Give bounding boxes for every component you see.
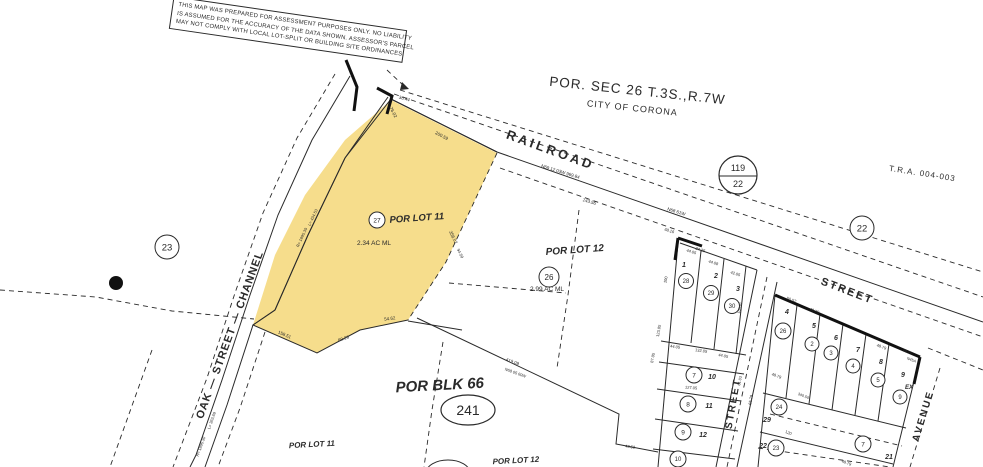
- label-42-05: 42.05: [730, 270, 742, 278]
- block-number: 241: [456, 402, 480, 418]
- label-por-sec-26-t-3s-r-7w: POR. SEC 26 T.3S.,R.7W: [549, 74, 727, 107]
- label-44-05: 44.05: [718, 352, 730, 359]
- label-2-34-ac-ml: 2.34 AC ML: [357, 240, 391, 247]
- label-por-lot-12: POR LOT 12: [545, 243, 604, 258]
- label-8: 8: [879, 359, 883, 366]
- dashed-boundary-line: [424, 342, 443, 467]
- boundary-line: [691, 251, 701, 343]
- dashed-boundary-line: [0, 290, 254, 319]
- heavy-boundary-line: [775, 295, 920, 357]
- label-t-r-a-004-003: T.R.A. 004-003: [888, 164, 956, 183]
- parcel-badge-number: 26: [780, 329, 787, 335]
- label-36-44: 36.44: [398, 95, 411, 103]
- dashed-boundary-line: [400, 90, 983, 272]
- parcel-badge-number: 26: [545, 273, 554, 282]
- label-419-09: 419.09: [505, 357, 520, 367]
- heavy-boundary-line: [346, 60, 357, 111]
- boundary-line: [408, 321, 462, 330]
- parcel-badge-number: 23: [773, 446, 780, 452]
- parcel-badge-number: 24: [776, 405, 783, 411]
- label-68-16: 68.16: [664, 227, 676, 235]
- parcel-badge-number: 27: [373, 217, 381, 224]
- label-por-lot-11: POR LOT 11: [289, 439, 336, 450]
- label-21: 21: [884, 454, 893, 461]
- label-143-56: 143.56: [582, 197, 597, 206]
- boundary-line: [680, 243, 757, 270]
- label-103-41: 103.41: [737, 302, 743, 314]
- page-reference-number: 119: [731, 163, 745, 173]
- label-n45a: N45A: [906, 356, 917, 363]
- label-48-70: 48.70: [902, 348, 912, 355]
- label-street: STREET: [819, 276, 875, 307]
- parcel-badge-number: 23: [162, 242, 173, 253]
- label-29: 29: [762, 417, 771, 424]
- label-132-05: 132.05: [695, 347, 709, 354]
- heavy-boundary-line: [675, 238, 678, 260]
- label-11: 11: [705, 403, 712, 410]
- label-6: 6: [834, 335, 838, 342]
- dashed-boundary-line: [394, 94, 983, 297]
- label-1: 1: [682, 262, 686, 269]
- label-10: 10: [708, 374, 716, 381]
- label-r-1895-30: R= 1895.30: [195, 435, 207, 457]
- label-avenue: AVENUE: [911, 389, 937, 443]
- label-4: 4: [784, 309, 789, 316]
- dashed-boundary-line: [387, 70, 404, 86]
- parcel-badge-number: 7: [692, 372, 696, 379]
- label-7: 7: [856, 347, 861, 354]
- boundary-line: [653, 449, 735, 459]
- label-12: 12: [699, 432, 707, 439]
- boundary-line: [786, 305, 797, 398]
- parcel-badge-number: 10: [675, 457, 682, 463]
- label-2-99-ac-ml: 2.99 AC ML: [530, 286, 564, 293]
- heavy-boundary-line: [678, 238, 702, 246]
- label-44-08: 44.08: [708, 259, 720, 267]
- label-100: 100: [662, 275, 668, 283]
- label-5: 5: [812, 323, 816, 330]
- parcel-badge-number: 28: [683, 279, 690, 285]
- label-9: 9: [901, 372, 905, 379]
- label-2: 2: [713, 273, 718, 280]
- label-48-79: 48.79: [771, 371, 783, 380]
- label-120: 120: [785, 429, 794, 436]
- label-340-50: 340.50: [797, 392, 809, 400]
- label-44-05: 44.05: [670, 343, 681, 349]
- label-48-79: 48.79: [841, 458, 853, 467]
- parcel-badge-number: 30: [729, 304, 736, 310]
- label-43-52: 43.52: [625, 443, 636, 449]
- label-city-of-corona: CITY OF CORONA: [586, 98, 678, 117]
- label-22: 22: [758, 443, 767, 450]
- label-87-05: 87.05: [649, 352, 656, 363]
- parcel-badge-number: 22: [857, 223, 868, 234]
- parcel-badge-number: 7: [861, 441, 865, 448]
- parcel-badge-number: 29: [708, 291, 715, 297]
- label-94-50: 94.50: [456, 248, 465, 260]
- label-ex: EX: [905, 385, 914, 391]
- monument-dot: [109, 276, 123, 290]
- dashed-boundary-line: [928, 348, 983, 370]
- dashed-boundary-line: [110, 350, 152, 467]
- label-123-05: 123.05: [655, 324, 662, 338]
- parcel-badge-number: 8: [686, 401, 690, 408]
- parcel-badge-number: 9: [681, 429, 685, 436]
- partial-ellipse: [426, 460, 470, 467]
- label-por-blk-66: POR BLK 66: [395, 375, 485, 397]
- label-65-79: 65.79: [747, 394, 754, 405]
- page-reference-number: 22: [733, 179, 743, 189]
- assessor-parcel-map-page: 272322262829307891026234592423711922241P…: [0, 0, 983, 467]
- label-3: 3: [736, 286, 740, 293]
- label-127-05: 127.05: [685, 384, 698, 390]
- assessor-parcel-map: 272322262829307891026234592423711922241P…: [0, 0, 983, 467]
- label-por-lot-12: POR LOT 12: [492, 455, 540, 466]
